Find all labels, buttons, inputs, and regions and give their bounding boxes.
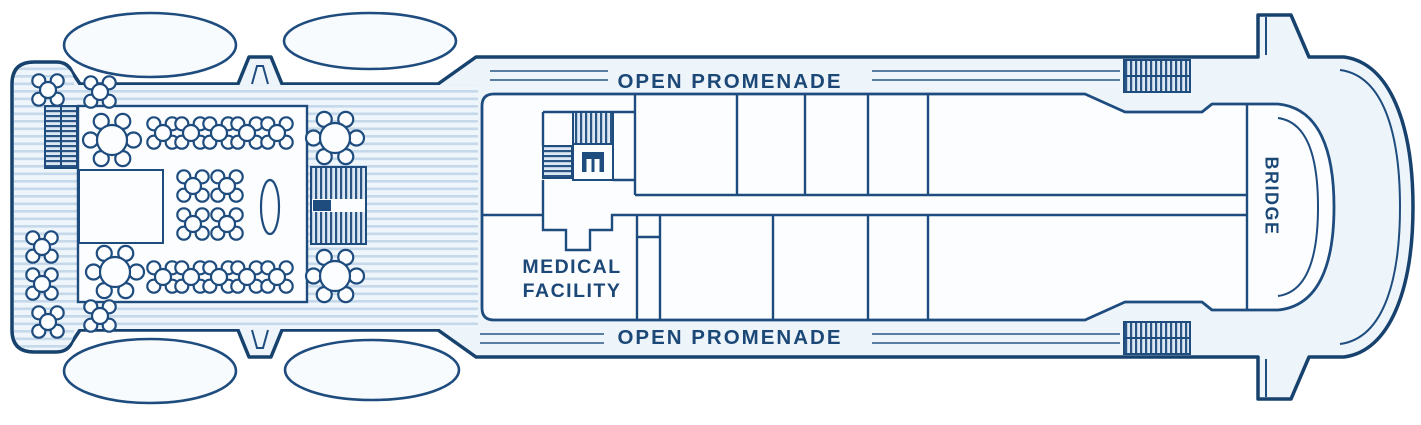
stairs-icon — [543, 146, 572, 178]
open-promenade-top-label: OPEN PROMENADE — [617, 70, 842, 93]
lifeboat-icon — [64, 13, 236, 77]
lifeboat-icon — [285, 340, 459, 400]
deck-plan: OPEN PROMENADE OPEN PROMENADE MEDICAL FA… — [0, 0, 1421, 425]
open-promenade-bottom-label: OPEN PROMENADE — [617, 326, 842, 349]
dance-floor — [79, 170, 163, 243]
pillar-oval-icon — [261, 180, 279, 234]
stern-stairs-icon — [45, 106, 77, 168]
lifeboat-icon — [64, 339, 236, 403]
deck-plan-figure: OPEN PROMENADE OPEN PROMENADE MEDICAL FA… — [0, 0, 1421, 425]
bridge-label: BRIDGE — [1261, 156, 1281, 235]
medical-facility-label-line2: FACILITY — [523, 280, 622, 302]
stairs-icon — [573, 112, 613, 144]
dining-stairs-icon — [311, 167, 366, 244]
promenade-stairs-top-icon — [1124, 60, 1190, 92]
elevator-icon — [582, 152, 604, 172]
medical-facility-label-line1: MEDICAL — [522, 256, 621, 278]
promenade-stairs-bottom-icon — [1124, 322, 1190, 354]
lifeboat-icon — [284, 13, 456, 69]
